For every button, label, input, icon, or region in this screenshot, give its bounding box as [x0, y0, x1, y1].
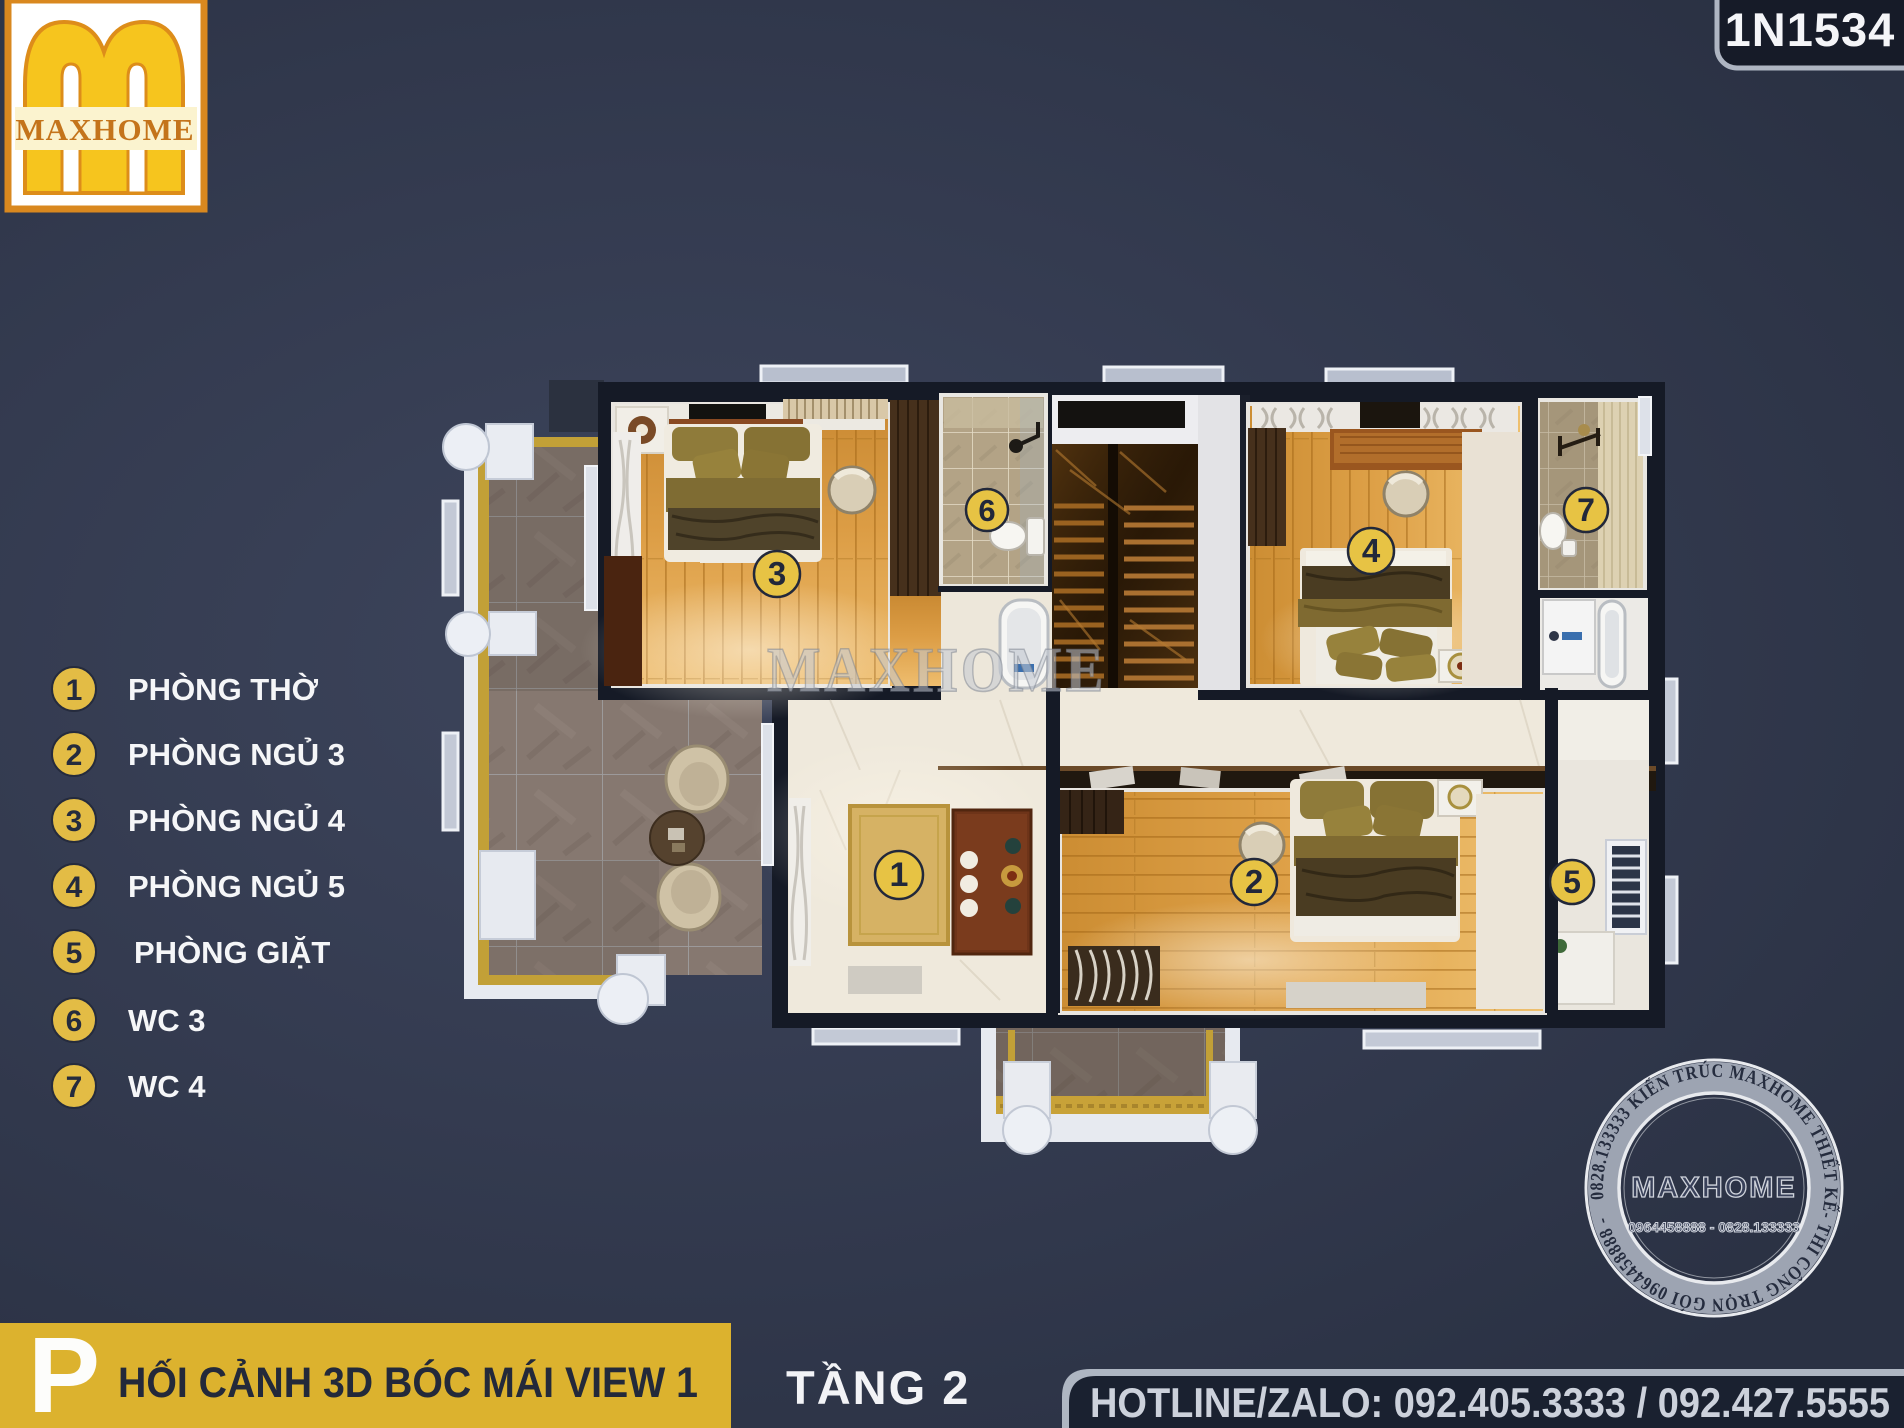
svg-text:7: 7 [1577, 492, 1595, 528]
svg-text:1: 1 [890, 856, 909, 894]
svg-text:3: 3 [768, 555, 786, 592]
svg-text:4: 4 [1362, 532, 1381, 569]
svg-text:PHÒNG NGỦ 3: PHÒNG NGỦ 3 [128, 736, 345, 772]
svg-text:MAXHOME: MAXHOME [767, 634, 1107, 705]
svg-text:6: 6 [66, 1005, 83, 1038]
svg-text:PHÒNG GIẶT: PHÒNG GIẶT [134, 934, 330, 970]
svg-text:TẦNG 2: TẦNG 2 [786, 1361, 970, 1414]
svg-text:PHÒNG NGỦ 5: PHÒNG NGỦ 5 [128, 868, 345, 904]
svg-text:4: 4 [66, 871, 83, 904]
svg-text:WC 3: WC 3 [128, 1003, 206, 1038]
svg-text:HỐI CẢNH 3D BÓC MÁI VIEW 1: HỐI CẢNH 3D BÓC MÁI VIEW 1 [118, 1358, 698, 1407]
svg-text:P: P [28, 1314, 100, 1428]
svg-text:2: 2 [66, 739, 83, 772]
svg-text:0964458888 - 0828.133333: 0964458888 - 0828.133333 [1628, 1219, 1800, 1235]
svg-text:3: 3 [66, 805, 83, 838]
svg-text:WC 4: WC 4 [128, 1069, 206, 1104]
svg-text:1N1534: 1N1534 [1725, 3, 1896, 56]
svg-text:PHÒNG NGỦ 4: PHÒNG NGỦ 4 [128, 802, 346, 838]
svg-text:1: 1 [66, 674, 83, 707]
svg-text:2: 2 [1245, 863, 1263, 900]
svg-text:PHÒNG THỜ: PHÒNG THỜ [128, 671, 319, 707]
svg-text:5: 5 [66, 937, 83, 970]
svg-text:5: 5 [1563, 864, 1581, 900]
svg-text:MAXHOME: MAXHOME [15, 112, 194, 147]
svg-text:7: 7 [66, 1071, 83, 1104]
svg-text:HOTLINE/ZALO: 092.405.3333 / 0: HOTLINE/ZALO: 092.405.3333 / 092.427.555… [1090, 1379, 1890, 1426]
svg-text:MAXHOME: MAXHOME [1631, 1172, 1796, 1204]
svg-text:6: 6 [978, 493, 995, 528]
